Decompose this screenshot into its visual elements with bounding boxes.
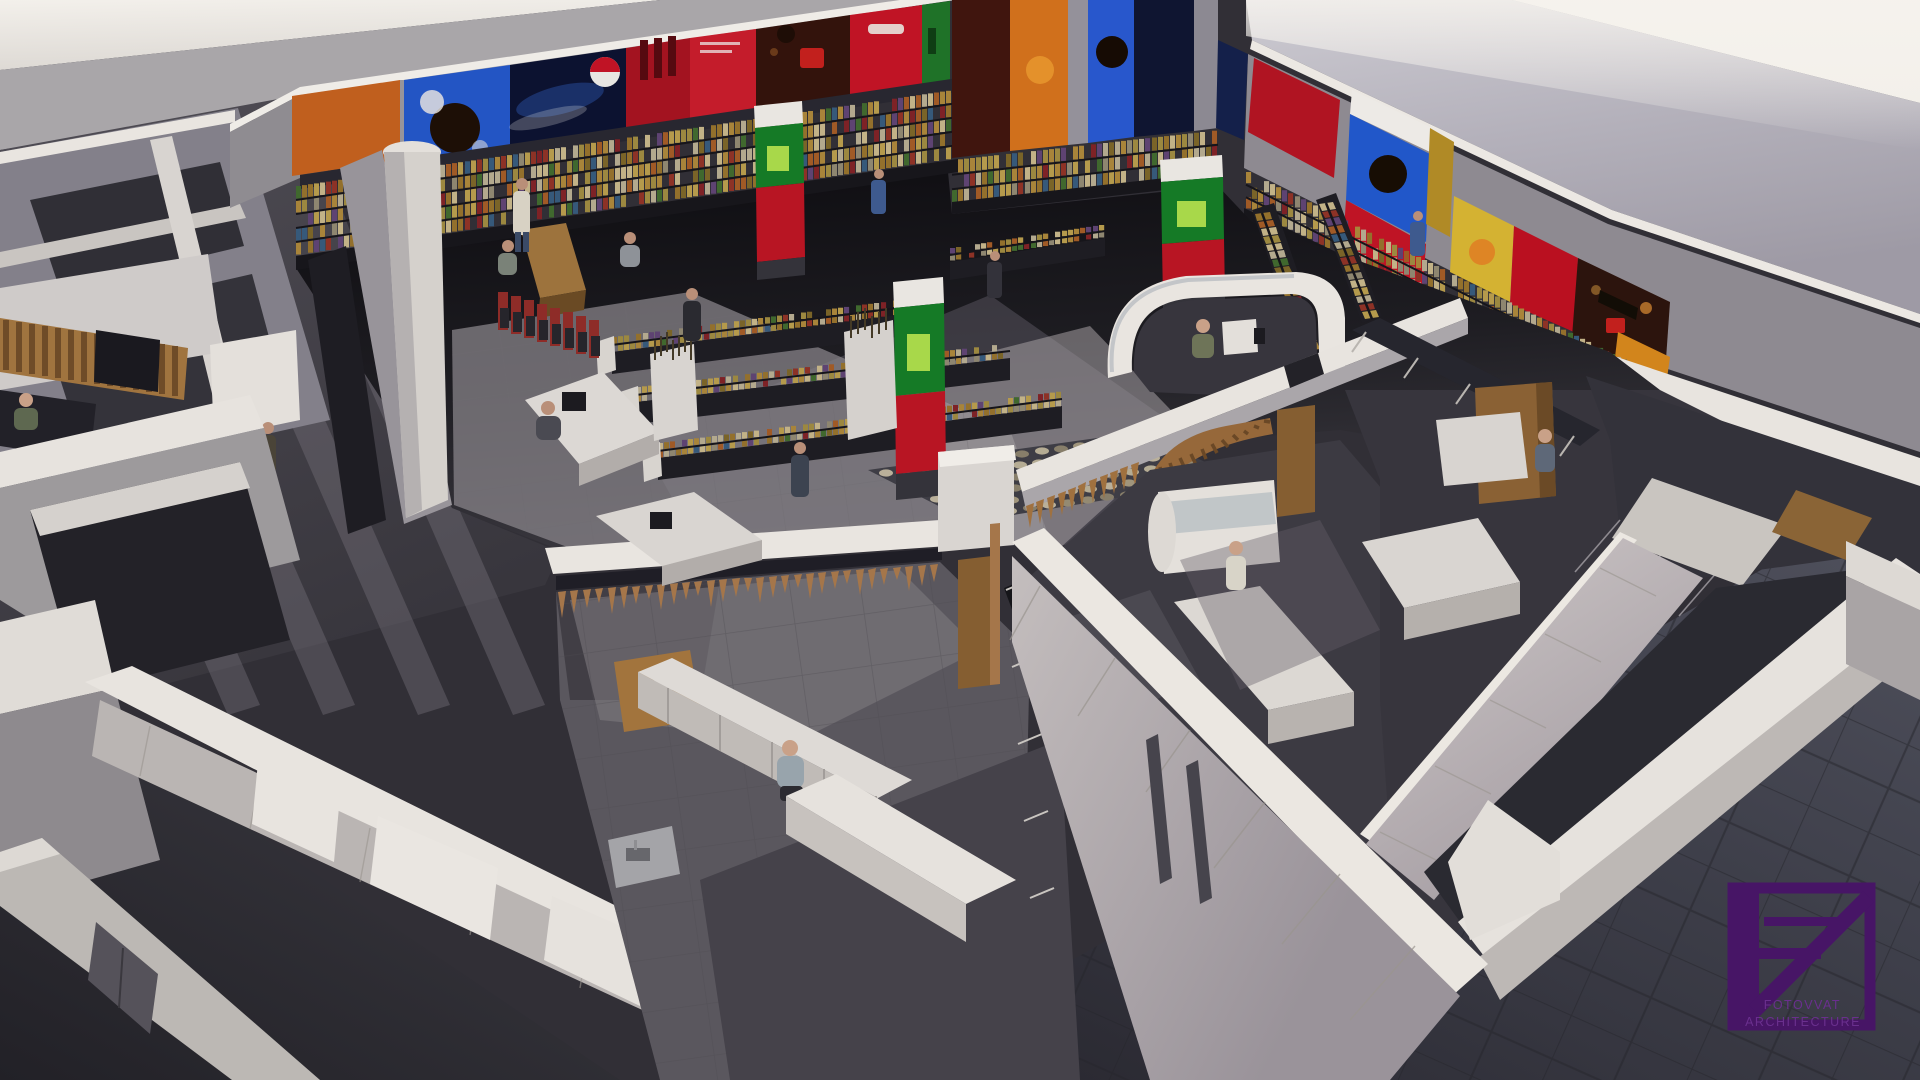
svg-text:FOTOVVAT: FOTOVVAT <box>1764 998 1841 1012</box>
svg-text:ARCHITECTURE: ARCHITECTURE <box>1745 1015 1861 1029</box>
